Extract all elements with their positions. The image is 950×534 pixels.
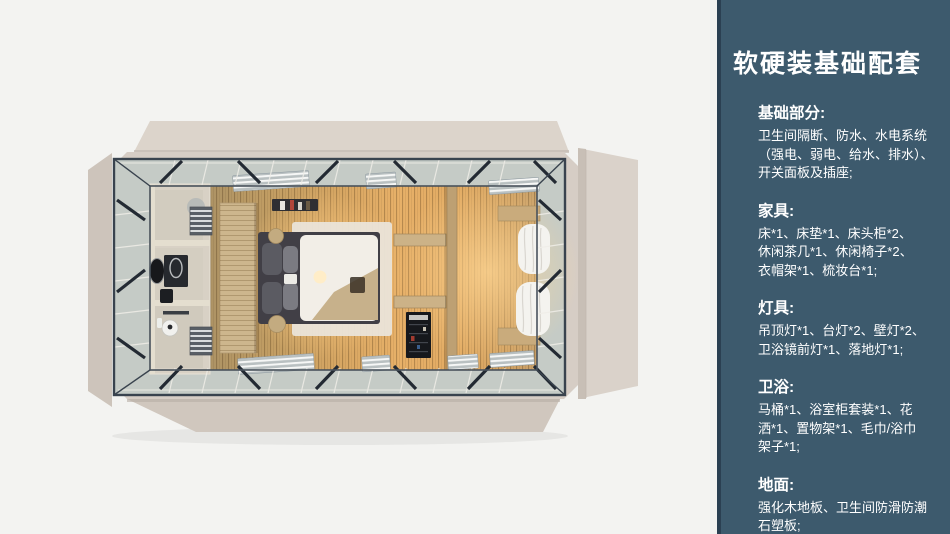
curtain	[516, 282, 550, 336]
partition-wall	[445, 186, 457, 370]
bed-throw	[350, 277, 365, 293]
table-lamp	[314, 271, 327, 284]
section-line: 休闲茶几*1、休闲椅子*2、	[758, 243, 938, 262]
pillow	[262, 282, 282, 314]
partition	[150, 240, 210, 246]
hand-shower	[157, 318, 162, 328]
bottom-edge-line	[127, 399, 560, 402]
section-line: 开关面板及插座;	[758, 164, 938, 183]
leisure-chair	[269, 316, 286, 333]
spec-section: 灯具:吊顶灯*1、台灯*2、壁灯*2、卫浴镜前灯*1、落地灯*1;	[717, 299, 938, 359]
bed-tray	[284, 274, 297, 284]
section-body: 吊顶灯*1、台灯*2、壁灯*2、卫浴镜前灯*1、落地灯*1;	[758, 322, 938, 359]
spec-section: 地面:强化木地板、卫生间防滑防潮石塑板;	[717, 476, 938, 534]
section-body: 马桶*1、浴室柜套装*1、花洒*1、置物架*1、毛巾/浴巾架子*1;	[758, 401, 938, 457]
section-heading: 灯具:	[758, 299, 938, 319]
section-heading: 卫浴:	[758, 378, 938, 398]
side-wing-panel	[578, 148, 638, 399]
section-line: 床*1、床垫*1、床头柜*2、	[758, 225, 938, 244]
section-line: 马桶*1、浴室柜套装*1、花	[758, 401, 938, 420]
spec-section: 基础部分:卫生间隔断、防水、水电系统（强电、弱电、给水、排水）、开关面板及插座;	[717, 104, 938, 183]
section-body: 床*1、床垫*1、床头柜*2、休闲茶几*1、休闲椅子*2、衣帽架*1、梳妆台*1…	[758, 225, 938, 281]
spec-section: 家具:床*1、床垫*1、床头柜*2、休闲茶几*1、休闲椅子*2、衣帽架*1、梳妆…	[717, 202, 938, 281]
section-line: 卫生间隔断、防水、水电系统	[758, 127, 938, 146]
vanity-mirror	[150, 259, 165, 284]
pillow	[283, 283, 298, 310]
spec-sections: 基础部分:卫生间隔断、防水、水电系统（强电、弱电、给水、排水）、开关面板及插座;…	[717, 104, 938, 534]
section-heading: 基础部分:	[758, 104, 938, 124]
headboard-wall	[220, 203, 258, 353]
partition	[150, 300, 210, 306]
panel-title: 软硬装基础配套	[717, 44, 938, 80]
section-line: 强化木地板、卫生间防滑防潮	[758, 499, 938, 518]
slide: 软硬装基础配套 基础部分:卫生间隔断、防水、水电系统（强电、弱电、给水、排水）、…	[0, 0, 950, 534]
section-body: 卫生间隔断、防水、水电系统（强电、弱电、给水、排水）、开关面板及插座;	[758, 127, 938, 183]
section-line: （强电、弱电、给水、排水）、	[758, 146, 938, 165]
spec-section: 卫浴:马桶*1、浴室柜套装*1、花洒*1、置物架*1、毛巾/浴巾架子*1;	[717, 378, 938, 457]
roof-left-flap	[88, 153, 112, 407]
roof-bottom-flap	[127, 399, 560, 432]
room-render-image	[0, 0, 717, 534]
section-body: 强化木地板、卫生间防滑防潮石塑板;	[758, 499, 938, 534]
wall-shelf	[498, 206, 540, 221]
sidebar: 软硬装基础配套 基础部分:卫生间隔断、防水、水电系统（强电、弱电、给水、排水）、…	[717, 0, 950, 534]
section-line: 石塑板;	[758, 517, 938, 534]
vanity-stool	[160, 289, 173, 303]
section-line: 架子*1;	[758, 438, 938, 457]
shower-bar	[163, 311, 189, 315]
pillow	[262, 243, 282, 275]
section-heading: 地面:	[758, 476, 938, 496]
section-line: 衣帽架*1、梳妆台*1;	[758, 262, 938, 281]
section-line: 洒*1、置物架*1、毛巾/浴巾	[758, 420, 938, 439]
cabinet	[406, 312, 431, 358]
bathroom-block	[150, 184, 213, 374]
roof-top-flap	[134, 121, 569, 152]
room-render-svg	[0, 0, 717, 534]
towel-rack	[190, 327, 212, 355]
pillow	[283, 246, 298, 273]
section-line: 吊顶灯*1、台灯*2、壁灯*2、	[758, 322, 938, 341]
leisure-chair	[269, 229, 284, 244]
wall-shelf-bottles	[272, 199, 318, 211]
section-line: 卫浴镜前灯*1、落地灯*1;	[758, 341, 938, 360]
section-heading: 家具:	[758, 202, 938, 222]
toilet-drain	[168, 325, 173, 330]
vanity-sink	[164, 255, 188, 287]
sidebar-content: 软硬装基础配套 基础部分:卫生间隔断、防水、水电系统（强电、弱电、给水、排水）、…	[717, 0, 950, 534]
towel-rack	[190, 207, 212, 235]
